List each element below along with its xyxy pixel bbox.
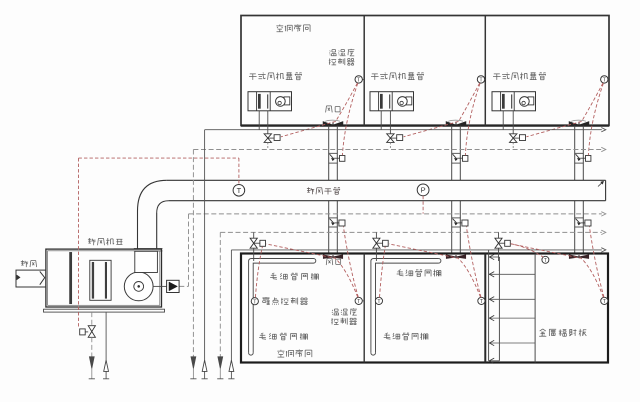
svg-text:P: P (421, 186, 426, 195)
svg-text:T: T (237, 186, 242, 195)
svg-text:T: T (544, 258, 547, 264)
